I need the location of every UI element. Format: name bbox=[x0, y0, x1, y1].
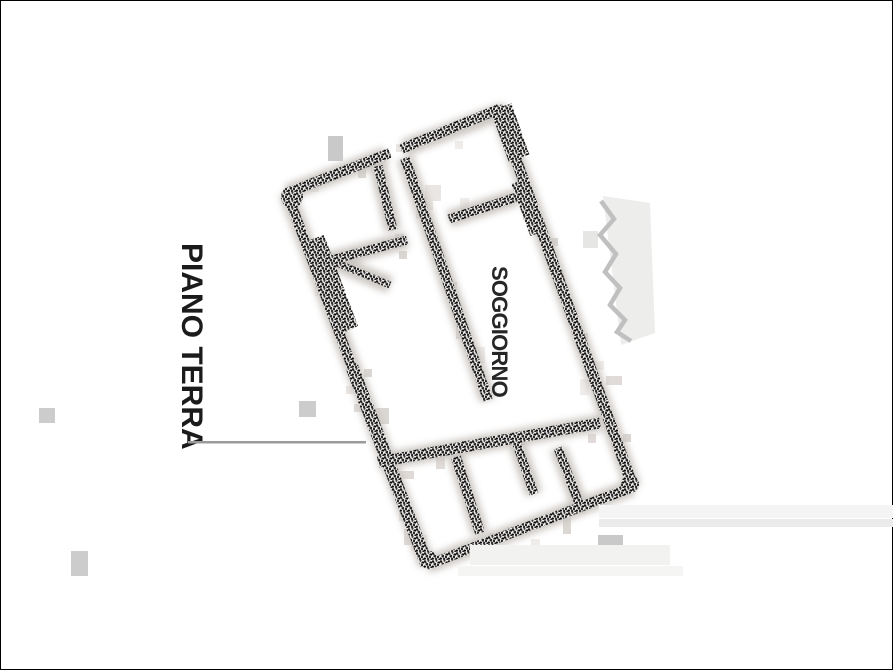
svg-text:SOGGIORNO: SOGGIORNO bbox=[487, 266, 512, 398]
svg-text:PIANO TERRA: PIANO TERRA bbox=[175, 243, 208, 450]
